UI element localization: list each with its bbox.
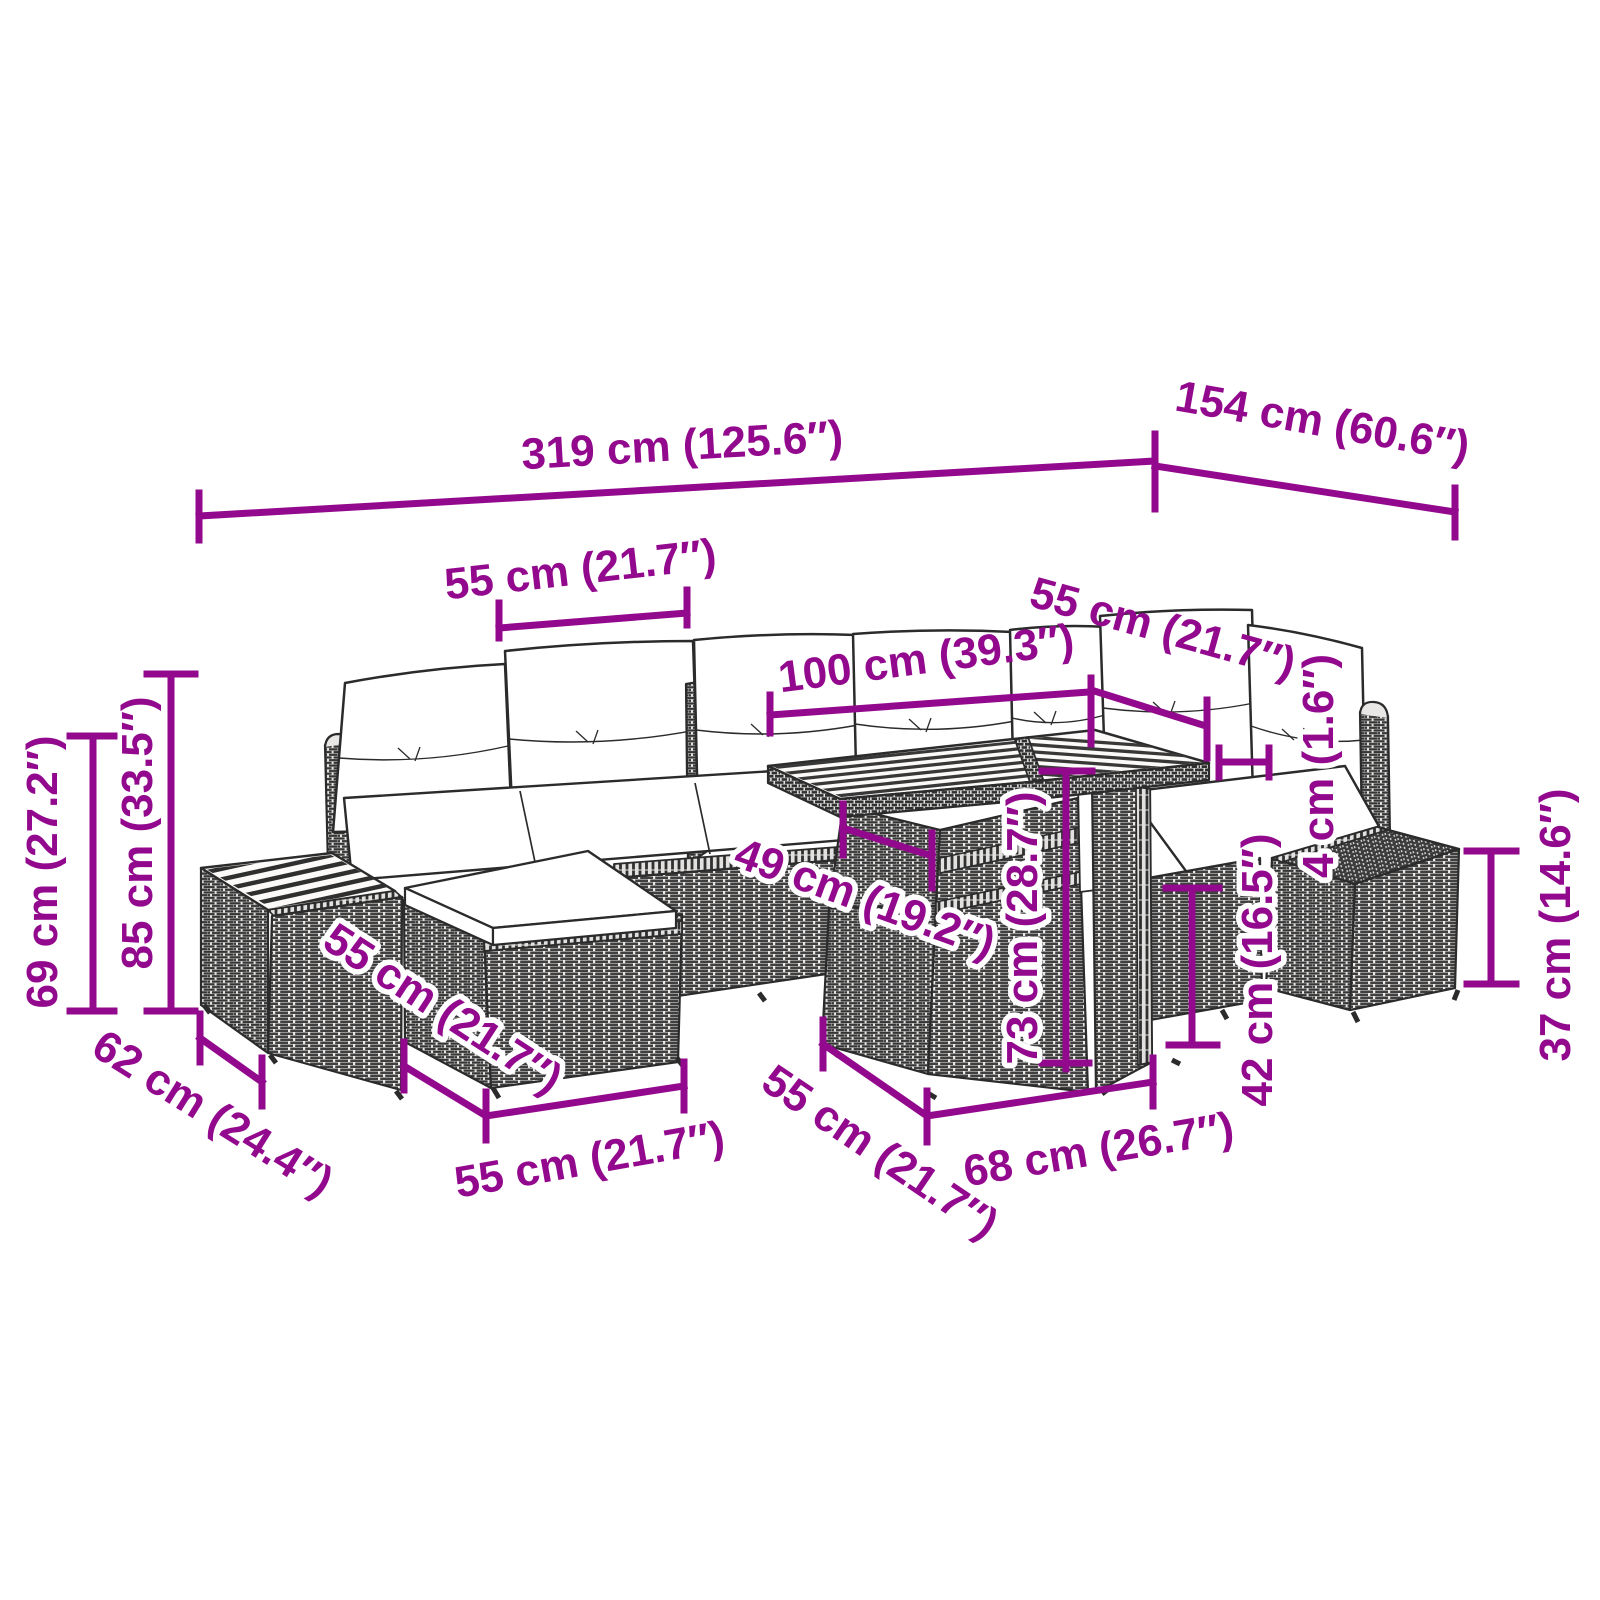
svg-text:73 cm (28.7″): 73 cm (28.7″) bbox=[998, 791, 1047, 1064]
svg-text:37 cm (14.6″): 37 cm (14.6″) bbox=[1531, 788, 1580, 1061]
svg-text:4 cm (1.6″): 4 cm (1.6″) bbox=[1294, 654, 1343, 878]
svg-text:69 cm (27.2″): 69 cm (27.2″) bbox=[18, 735, 67, 1008]
svg-text:42 cm (16.5″): 42 cm (16.5″) bbox=[1233, 833, 1282, 1106]
svg-text:85 cm (33.5″): 85 cm (33.5″) bbox=[113, 696, 162, 969]
